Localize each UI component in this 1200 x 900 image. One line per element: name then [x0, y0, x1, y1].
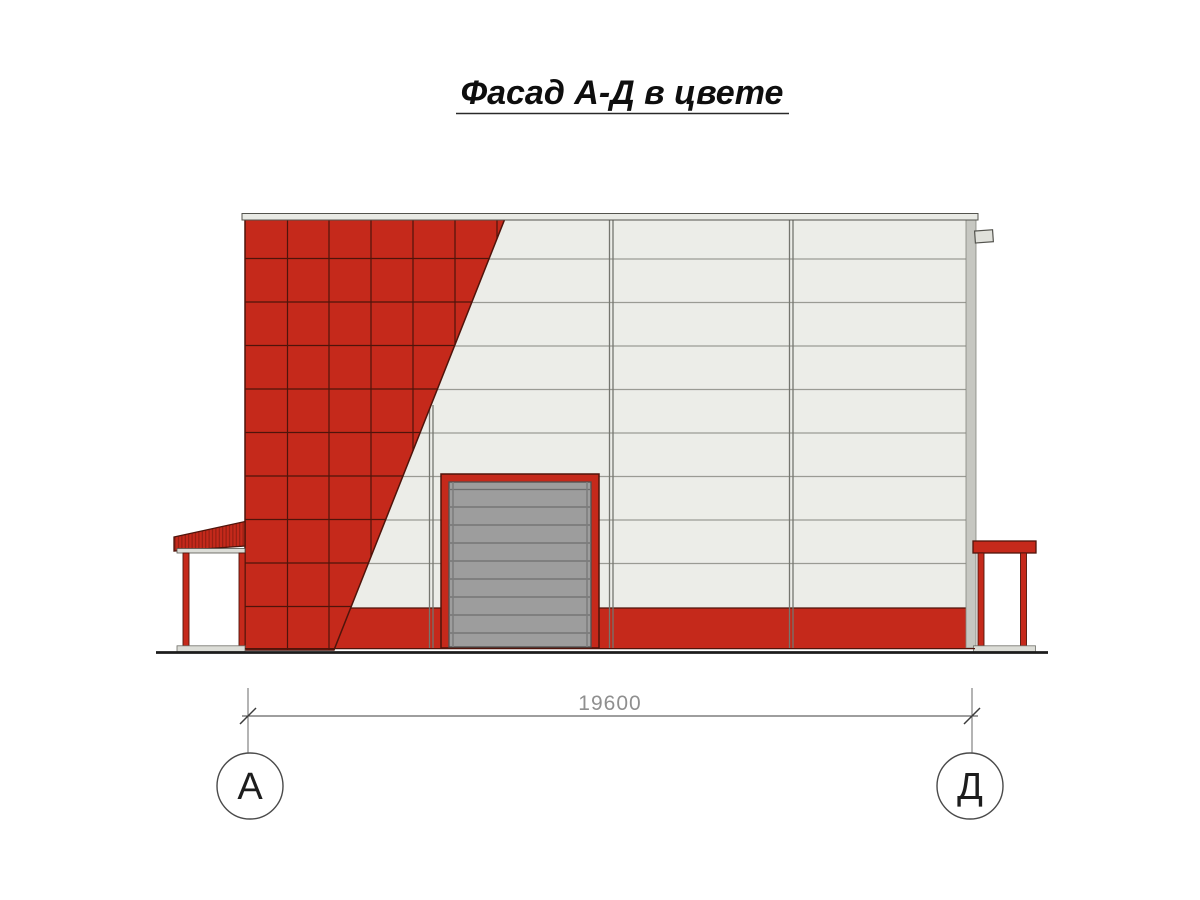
canopy-left	[174, 522, 245, 652]
canopy-left-roof	[174, 522, 245, 552]
corner-trim	[966, 220, 976, 648]
axis-label-d: Д	[957, 766, 983, 808]
garage-door	[441, 474, 599, 648]
axis-label-a: А	[237, 766, 263, 808]
scupper-pipe	[975, 230, 994, 243]
drawing-sheet: Фасад А-Д в цвете АЛЬЯНС	[0, 0, 1200, 900]
canopy-right-post-inner	[978, 553, 984, 647]
building-facade	[242, 214, 993, 651]
canopy-left-post-inner	[239, 553, 245, 648]
facade-elevation-drawing: Фасад А-Д в цвете АЛЬЯНС	[0, 0, 1200, 900]
dimension-block: 19600	[240, 688, 980, 753]
canopy-left-post-outer	[183, 553, 189, 648]
canopy-left-foundation	[177, 646, 245, 652]
axis-marker-d: Д	[937, 753, 1003, 819]
canopy-right-roof	[973, 541, 1036, 553]
title-block: Фасад А-Д в цвете	[456, 74, 789, 114]
canopy-right	[973, 541, 1036, 652]
canopy-left-beam	[177, 549, 245, 554]
canopy-right-post-outer	[1021, 553, 1027, 647]
parapet-coping	[242, 214, 978, 221]
dimension-value: 19600	[578, 692, 641, 715]
axis-marker-a: А	[217, 753, 283, 819]
canopy-right-foundation	[974, 646, 1036, 652]
page-title: Фасад А-Д в цвете	[461, 74, 784, 112]
